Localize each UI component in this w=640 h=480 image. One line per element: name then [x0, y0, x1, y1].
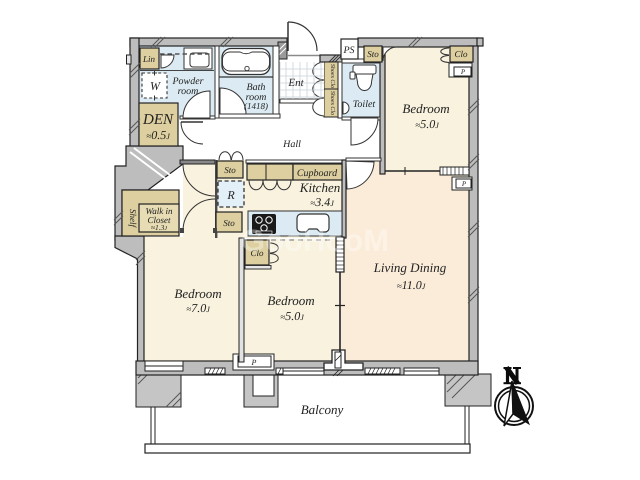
svg-text:P: P: [461, 180, 467, 188]
svg-text:Sto: Sto: [224, 165, 236, 175]
svg-text:DEN: DEN: [142, 112, 174, 128]
svg-text:Sto: Sto: [223, 218, 235, 228]
svg-text:Kitchen: Kitchen: [299, 180, 340, 195]
svg-text:Balcony: Balcony: [301, 402, 344, 417]
svg-text:Living Dining: Living Dining: [373, 260, 447, 275]
svg-text:Clo: Clo: [454, 49, 468, 59]
svg-text:Ent: Ent: [287, 77, 304, 89]
svg-text:Bedroom: Bedroom: [174, 286, 221, 301]
svg-text:P: P: [251, 358, 257, 367]
svg-text:Lin: Lin: [142, 54, 156, 64]
svg-text:≈11.0J: ≈11.0J: [397, 278, 426, 292]
svg-text:Bedroom: Bedroom: [267, 293, 314, 308]
svg-text:R: R: [226, 188, 235, 202]
svg-text:Toilet: Toilet: [353, 99, 376, 110]
svg-text:Shoes Clo: Shoes Clo: [329, 64, 336, 88]
svg-text:Shelf: Shelf: [128, 209, 138, 228]
svg-text:room: room: [178, 86, 199, 97]
svg-text:Hall: Hall: [282, 139, 301, 150]
svg-text:W: W: [150, 79, 161, 93]
svg-text:P: P: [460, 68, 466, 76]
svg-text:Shoes Clo: Shoes Clo: [329, 91, 336, 115]
svg-text:Bedroom: Bedroom: [402, 101, 449, 116]
svg-text:Sto: Sto: [367, 49, 379, 59]
svg-text:PS: PS: [342, 45, 354, 56]
svg-text:Cupboard: Cupboard: [297, 168, 338, 179]
svg-text:(1418): (1418): [244, 101, 268, 111]
svg-text:GooHooM: GooHooM: [241, 223, 389, 258]
